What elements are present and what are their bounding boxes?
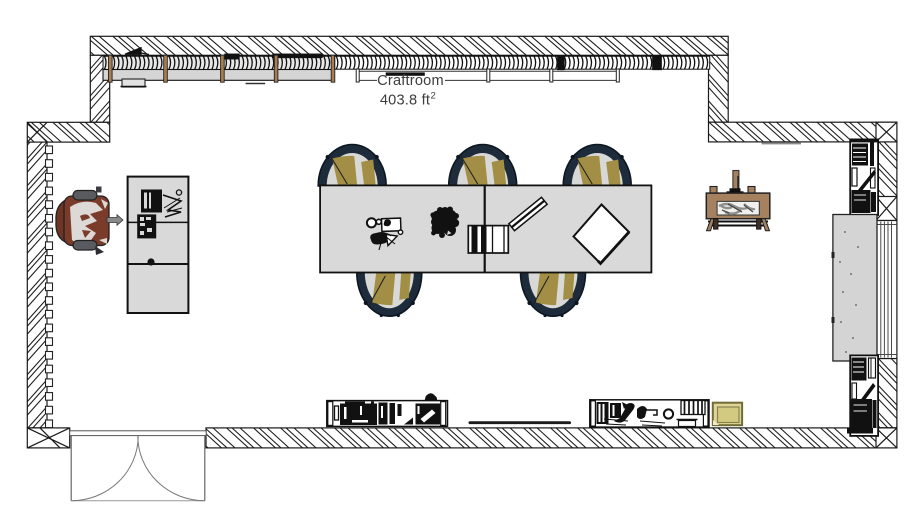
svg-text:Craftroom: Craftroom — [377, 73, 444, 89]
svg-text:2: 2 — [431, 91, 436, 102]
svg-text:403.8 ft: 403.8 ft — [380, 93, 430, 109]
